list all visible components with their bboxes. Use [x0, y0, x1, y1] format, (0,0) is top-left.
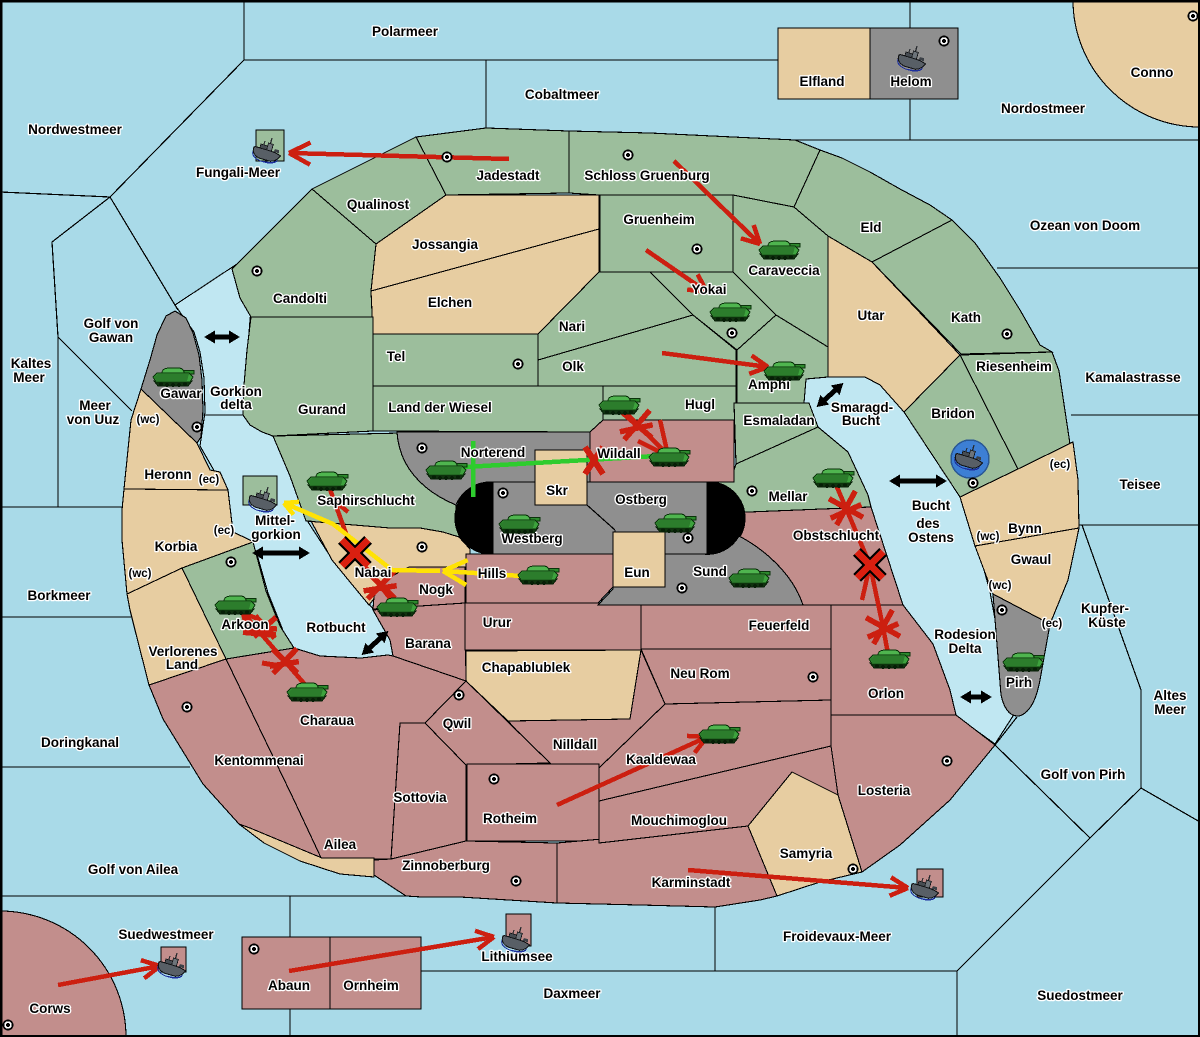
svg-text:Barana: Barana	[405, 636, 451, 651]
svg-text:Suedwestmeer: Suedwestmeer	[118, 927, 214, 942]
svg-text:gorkion: gorkion	[251, 527, 301, 542]
svg-text:Golf von Ailea: Golf von Ailea	[88, 862, 179, 877]
svg-text:Ailea: Ailea	[324, 837, 357, 852]
svg-text:Meer: Meer	[13, 370, 45, 385]
svg-text:Fungali-Meer: Fungali-Meer	[196, 165, 281, 180]
svg-text:Kentommenai: Kentommenai	[214, 753, 303, 768]
svg-text:Altes: Altes	[1153, 688, 1186, 703]
svg-text:Abaun: Abaun	[268, 978, 310, 993]
svg-text:Orlon: Orlon	[868, 686, 904, 701]
svg-text:Jossangia: Jossangia	[412, 237, 479, 252]
svg-text:Pirh: Pirh	[1006, 675, 1032, 690]
svg-text:Polarmeer: Polarmeer	[372, 24, 439, 39]
svg-text:Borkmeer: Borkmeer	[27, 588, 91, 603]
svg-text:Wildall: Wildall	[597, 446, 640, 461]
svg-text:Conno: Conno	[1131, 65, 1174, 80]
svg-text:Gruenheim: Gruenheim	[623, 212, 694, 227]
svg-text:Tel: Tel	[387, 349, 406, 364]
svg-text:(ec): (ec)	[199, 474, 220, 486]
svg-text:Bridon: Bridon	[931, 406, 975, 421]
svg-text:Land: Land	[166, 657, 198, 672]
svg-text:Losteria: Losteria	[858, 783, 911, 798]
svg-text:Skr: Skr	[546, 483, 569, 498]
svg-text:Heronn: Heronn	[144, 467, 191, 482]
svg-text:Nordostmeer: Nordostmeer	[1001, 101, 1086, 116]
svg-text:Saphirschlucht: Saphirschlucht	[317, 493, 415, 508]
svg-text:Sottovia: Sottovia	[393, 790, 447, 805]
svg-text:Kamalastrasse: Kamalastrasse	[1085, 370, 1181, 385]
svg-text:Froidevaux-Meer: Froidevaux-Meer	[783, 929, 892, 944]
svg-text:Charaua: Charaua	[300, 713, 355, 728]
svg-text:Doringkanal: Doringkanal	[41, 735, 119, 750]
svg-text:(wc): (wc)	[977, 531, 1000, 543]
svg-text:Candolti: Candolti	[273, 291, 327, 306]
svg-text:Yokai: Yokai	[691, 282, 726, 297]
svg-text:Daxmeer: Daxmeer	[543, 986, 601, 1001]
svg-text:Ozean von Doom: Ozean von Doom	[1030, 218, 1140, 233]
svg-text:Eld: Eld	[860, 220, 881, 235]
svg-text:delta: delta	[220, 397, 252, 412]
svg-text:Ostberg: Ostberg	[615, 492, 667, 507]
svg-text:Rotheim: Rotheim	[483, 811, 537, 826]
svg-text:Bucht: Bucht	[912, 498, 951, 513]
svg-text:(wc): (wc)	[129, 568, 152, 580]
svg-text:Riesenheim: Riesenheim	[976, 359, 1052, 374]
svg-text:Nilldall: Nilldall	[553, 737, 597, 752]
svg-text:(ec): (ec)	[214, 525, 235, 537]
svg-text:Kaltes: Kaltes	[11, 356, 52, 371]
svg-text:Feuerfeld: Feuerfeld	[749, 618, 810, 633]
svg-text:Rodesion: Rodesion	[934, 627, 996, 642]
svg-text:Elfland: Elfland	[799, 74, 844, 89]
svg-text:Bucht: Bucht	[842, 413, 881, 428]
svg-text:Korbia: Korbia	[155, 539, 198, 554]
svg-text:Zinnoberburg: Zinnoberburg	[402, 858, 490, 873]
svg-text:Esmaladan: Esmaladan	[743, 413, 814, 428]
svg-text:Mellar: Mellar	[768, 489, 808, 504]
svg-text:Rotbucht: Rotbucht	[306, 620, 366, 635]
svg-text:(wc): (wc)	[137, 414, 160, 426]
svg-text:Meer: Meer	[1154, 702, 1186, 717]
svg-text:Arkoon: Arkoon	[221, 617, 268, 632]
svg-text:Obstschlucht: Obstschlucht	[793, 528, 880, 543]
svg-text:Gawar: Gawar	[160, 386, 202, 401]
svg-text:Ornheim: Ornheim	[343, 978, 399, 993]
svg-text:Nari: Nari	[559, 319, 585, 334]
svg-text:Gawan: Gawan	[89, 330, 133, 345]
svg-text:Nabai: Nabai	[355, 565, 392, 580]
svg-text:Kath: Kath	[951, 310, 981, 325]
svg-text:des: des	[916, 516, 939, 531]
svg-text:Land der Wiesel: Land der Wiesel	[388, 400, 491, 415]
svg-text:Chapablublek: Chapablublek	[482, 660, 571, 675]
svg-text:Kupfer-: Kupfer-	[1081, 601, 1129, 616]
svg-text:Schloss Gruenburg: Schloss Gruenburg	[584, 168, 709, 183]
svg-text:Caraveccia: Caraveccia	[748, 263, 820, 278]
svg-text:Mittel-: Mittel-	[255, 513, 295, 528]
svg-text:Qwil: Qwil	[443, 716, 472, 731]
svg-text:Neu Rom: Neu Rom	[670, 666, 729, 681]
svg-text:Elchen: Elchen	[428, 295, 472, 310]
svg-text:Samyria: Samyria	[780, 846, 833, 861]
svg-text:Gurand: Gurand	[298, 402, 346, 417]
svg-text:Eun: Eun	[624, 565, 650, 580]
svg-text:Helom: Helom	[890, 74, 931, 89]
svg-text:Gwaul: Gwaul	[1011, 552, 1052, 567]
svg-text:Utar: Utar	[857, 308, 885, 323]
svg-text:(ec): (ec)	[1050, 459, 1071, 471]
svg-text:von Uuz: von Uuz	[67, 412, 120, 427]
svg-text:Teisee: Teisee	[1119, 477, 1161, 492]
svg-text:Karminstadt: Karminstadt	[652, 875, 731, 890]
svg-text:Hills: Hills	[478, 566, 507, 581]
svg-text:(ec): (ec)	[1042, 618, 1063, 630]
svg-text:Norterend: Norterend	[461, 445, 526, 460]
svg-text:Meer: Meer	[79, 398, 111, 413]
svg-text:Jadestadt: Jadestadt	[476, 168, 540, 183]
svg-text:Olk: Olk	[562, 359, 584, 374]
svg-text:Sund: Sund	[693, 564, 727, 579]
svg-text:Mouchimoglou: Mouchimoglou	[631, 813, 727, 828]
svg-text:Kaaldewaa: Kaaldewaa	[626, 752, 696, 767]
svg-text:Hugl: Hugl	[685, 397, 715, 412]
svg-text:Bynn: Bynn	[1008, 521, 1042, 536]
svg-text:Corws: Corws	[29, 1001, 70, 1016]
svg-text:(wc): (wc)	[989, 580, 1012, 592]
svg-text:Qualinost: Qualinost	[347, 197, 410, 212]
svg-text:Cobaltmeer: Cobaltmeer	[525, 87, 600, 102]
svg-text:Suedostmeer: Suedostmeer	[1037, 988, 1123, 1003]
svg-text:Nordwestmeer: Nordwestmeer	[28, 122, 123, 137]
svg-text:Ostens: Ostens	[908, 530, 954, 545]
svg-text:Urur: Urur	[483, 615, 512, 630]
svg-text:Delta: Delta	[948, 641, 982, 656]
svg-text:Nogk: Nogk	[419, 582, 453, 597]
svg-text:Küste: Küste	[1088, 615, 1126, 630]
svg-text:Golf von: Golf von	[84, 316, 139, 331]
svg-text:Golf von Pirh: Golf von Pirh	[1041, 767, 1126, 782]
